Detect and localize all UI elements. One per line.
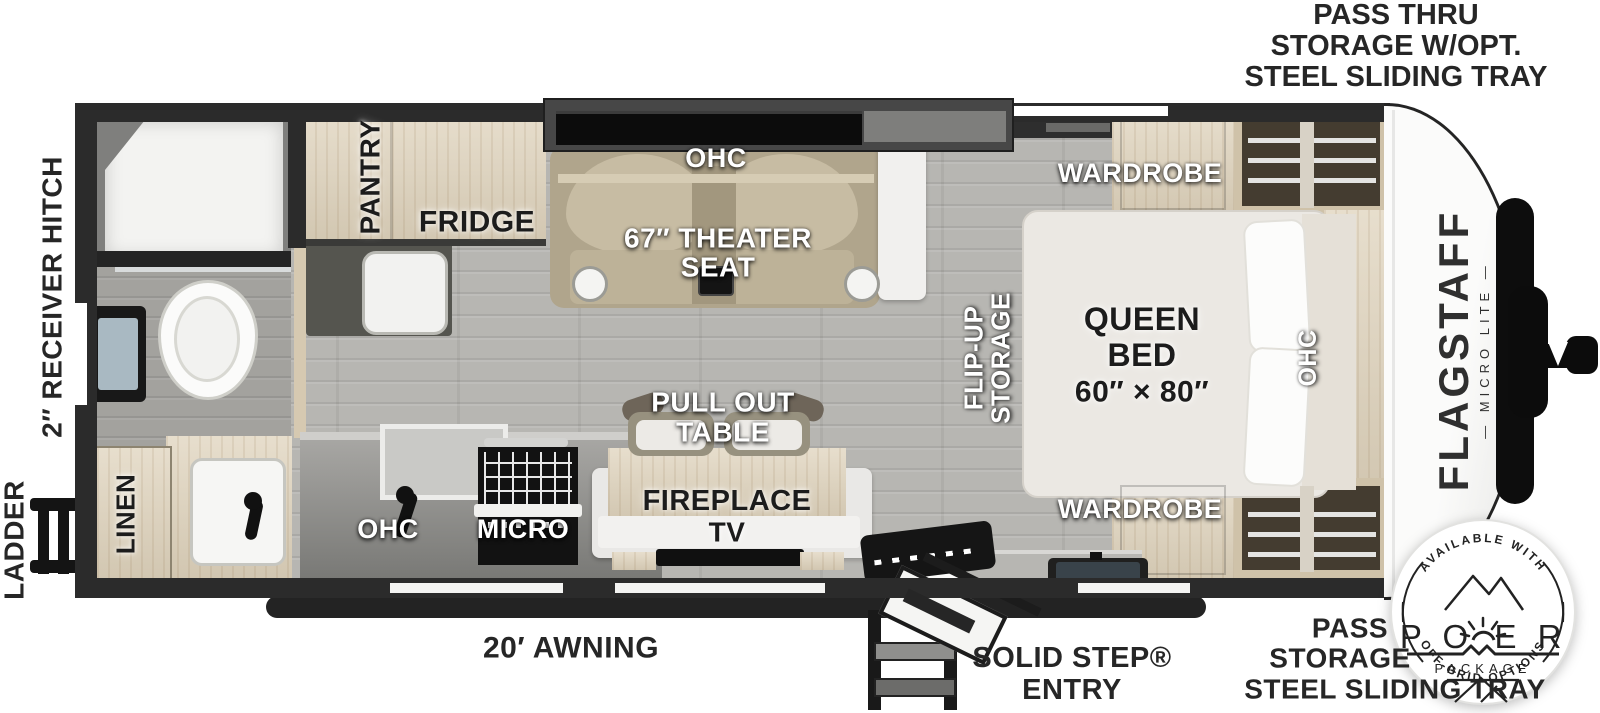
awning-bar: [266, 596, 1206, 618]
label-pass-bottom-line2: STORAGE: [1269, 643, 1410, 672]
theater-end-panel: [878, 132, 926, 300]
label-awning: 20′ AWNING: [483, 632, 659, 664]
label-pull-out-line1: PULL OUT: [651, 387, 794, 416]
brand-series: — MICRO LITE —: [1478, 209, 1492, 492]
shower-glass: [115, 267, 291, 272]
cupholder-left: [572, 266, 608, 302]
badge-power-left: P O: [1400, 618, 1474, 655]
label-theater-line2: SEAT: [681, 252, 756, 281]
label-fridge: FRIDGE: [419, 206, 535, 238]
window-top-bedroom: [988, 106, 1168, 116]
label-ohc-bed: OHC: [1295, 329, 1321, 386]
pantry-side-panel: [294, 248, 306, 438]
label-pantry: PANTRY: [355, 120, 384, 235]
slideout-counter: [864, 111, 1006, 142]
window-bottom-bedroom: [1078, 583, 1190, 593]
window-bottom-kitchen: [390, 583, 563, 593]
label-micro: MICRO: [477, 515, 570, 543]
kitchen-faucet-knob: [396, 486, 414, 504]
cooktop-knob: [1090, 552, 1102, 560]
pantry-fridge-divider: [390, 113, 393, 239]
shower-ledge: [97, 251, 291, 267]
fireplace-tray-left: [612, 552, 656, 570]
label-ohc-living: OHC: [685, 144, 747, 172]
theater-shelf: [558, 174, 874, 183]
stove-rail: [484, 438, 568, 447]
stove-grate: [484, 452, 572, 506]
label-pass-bottom-line1: PASS: [1312, 613, 1388, 642]
step-tread-2: [874, 678, 956, 697]
cupholder-right: [844, 266, 880, 302]
brand-flagstaff: FLAGSTAFF — MICRO LITE —: [1432, 209, 1492, 492]
label-solid-step-line1: SOLID STEP®: [972, 643, 1171, 673]
badge-power-right: E R: [1494, 618, 1567, 655]
fireplace-insert: [656, 549, 804, 566]
shower-pan: [105, 121, 283, 257]
ceiling-vent-inner: [1046, 123, 1110, 132]
brand-model: FLAGSTAFF: [1432, 209, 1476, 492]
label-queen-line3: 60″ × 80″: [1075, 376, 1209, 408]
bathroom-sink: [190, 458, 286, 566]
label-wardrobe-bottom: WARDROBE: [1058, 495, 1223, 523]
toilet-seat: [174, 296, 240, 382]
label-receiver-hitch: 2″ RECEIVER HITCH: [37, 156, 66, 438]
bathroom-wall: [288, 112, 306, 248]
label-ohc-kitchen: OHC: [357, 515, 419, 543]
label-pass-bottom-line3: STEEL SLIDING TRAY: [1244, 674, 1546, 703]
label-fireplace: FIREPLACE: [643, 486, 812, 516]
medicine-cabinet-mirror: [98, 318, 138, 390]
slideout-tv: [556, 111, 862, 145]
label-solid-step-line2: ENTRY: [1022, 675, 1122, 705]
fireplace-tray-right: [800, 552, 844, 570]
label-tv: TV: [709, 517, 746, 546]
hitch-coupler: [1566, 336, 1598, 374]
label-ladder: LADDER: [0, 480, 29, 600]
utility-sink: [362, 251, 448, 335]
rod-post: [1300, 486, 1314, 572]
label-pass-thru-top: PASS THRU STORAGE W/OPT. STEEL SLIDING T…: [1196, 0, 1596, 93]
label-flip-up-storage: FLIP-UP STORAGE: [961, 292, 1016, 424]
bathroom-faucet-knob: [244, 492, 262, 510]
floorplan-canvas: PANTRY FRIDGE OHC 67″ THEATER SEAT FLIP-…: [0, 0, 1600, 713]
window-bottom-living: [615, 583, 825, 593]
label-queen-line2: BED: [1107, 339, 1176, 373]
label-theater-line1: 67″ THEATER: [624, 223, 812, 252]
label-wardrobe-top: WARDROBE: [1058, 159, 1223, 187]
rod-post: [1300, 122, 1314, 208]
label-queen-line1: QUEEN: [1084, 303, 1200, 337]
label-linen: LINEN: [112, 474, 139, 555]
pantry-fridge-edge: [304, 239, 546, 246]
window-bathroom: [75, 303, 87, 405]
label-pull-out-line2: TABLE: [676, 417, 770, 446]
